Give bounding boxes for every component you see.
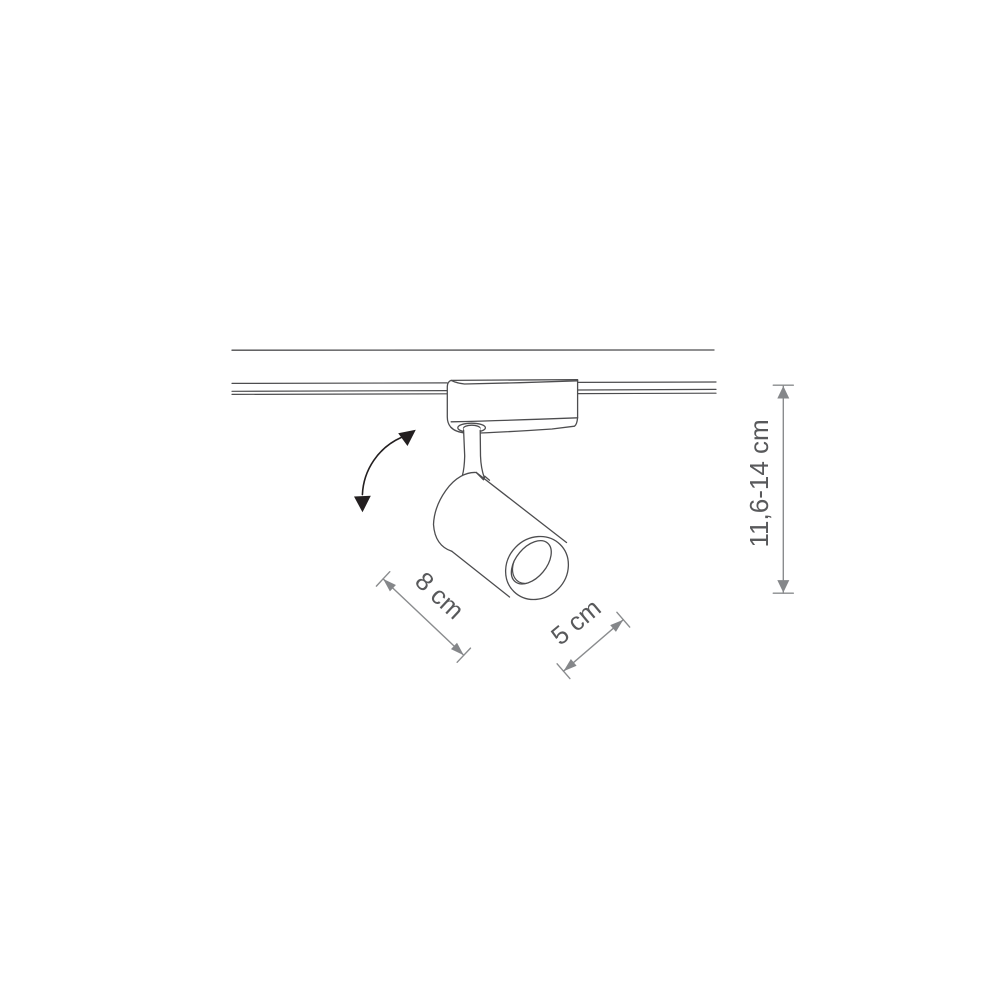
svg-text:8 cm: 8 cm	[409, 567, 469, 625]
svg-text:11,6-14 cm: 11,6-14 cm	[744, 419, 774, 547]
